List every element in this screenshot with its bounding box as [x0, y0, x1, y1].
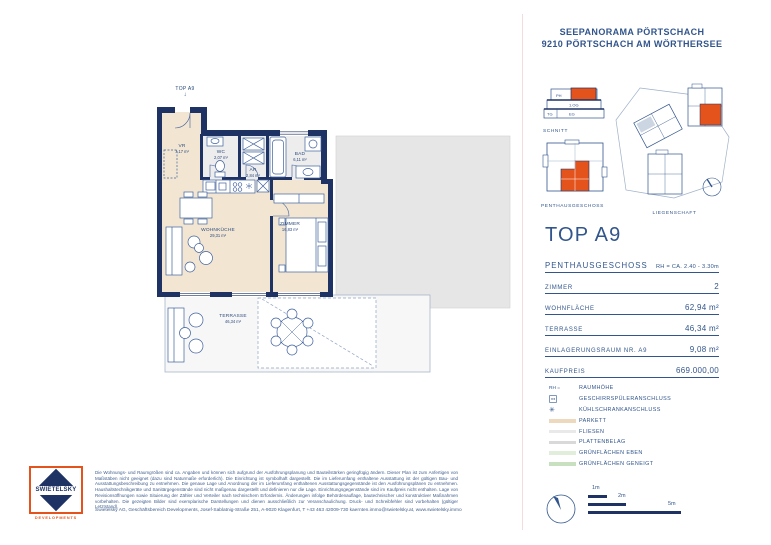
- gruen-eben-swatch: [549, 451, 576, 455]
- row-label: EINLAGERUNGSRAUM NR. A9: [545, 348, 647, 354]
- logo-division: DEVELOPMENTS: [28, 516, 84, 520]
- logo-box: SWIETELSKY: [29, 466, 83, 514]
- scale-bar-5m: [588, 511, 681, 514]
- row-label: ZIMMER: [545, 285, 573, 291]
- scale-5m-label: 5m: [668, 501, 676, 507]
- parkett-swatch: [549, 419, 576, 423]
- fridge-icon: ✳: [549, 406, 579, 414]
- table-row: EINLAGERUNGSRAUM NR. A9 9,08 m²: [545, 336, 719, 357]
- company-line: Swietelsky AG, Geschäftsbereich Developm…: [95, 508, 495, 513]
- room-label: AR2,84 m²: [246, 168, 260, 179]
- legend-item: ✳ KÜHLSCHRANKANSCHLUSS: [549, 405, 724, 416]
- site-north-arrow-icon: [703, 178, 721, 196]
- floorkey-caption: PENTHAUSGESCHOSS: [541, 204, 609, 209]
- section-caption: SCHNITT: [543, 129, 605, 134]
- section-diagram: PH 1.OG TG EG SCHNITT: [543, 86, 605, 134]
- legend-item: PARKETT: [549, 415, 724, 426]
- swietelsky-logo: SWIETELSKY DEVELOPMENTS: [28, 466, 84, 520]
- floor-plan: TOP A9 ↓ VR7,17 m² WC2,07 m² AR2,84 m² B…: [140, 80, 530, 380]
- row-label: KAUFPREIS: [545, 369, 585, 375]
- legend-item: GRÜNFLÄCHEN GENEIGT: [549, 459, 724, 470]
- floorkey-diagram: PENTHAUSGESCHOSS: [541, 139, 609, 209]
- site-building-1: [634, 104, 682, 148]
- site-diagram-svg: [612, 82, 737, 204]
- row-value: RH = CA. 2.40 - 3.30m: [656, 264, 719, 270]
- room-label: TERRASSE46,34 m²: [219, 314, 246, 325]
- project-name: SEEPANORAMA PÖRTSCHACH: [532, 27, 732, 39]
- unit-table: PENTHAUSGESCHOSS RH = CA. 2.40 - 3.30m Z…: [545, 252, 719, 378]
- room-label: ZIMMER16,83 m²: [280, 222, 300, 233]
- roof-area: [336, 136, 510, 308]
- scale-bar-2m: [588, 503, 626, 506]
- disclaimer-text: Die Wohnungs- und Raumgrößen sind ca. An…: [95, 470, 458, 510]
- legend-item: GRÜNFLÄCHEN EBEN: [549, 448, 724, 459]
- row-label: WOHNFLÄCHE: [545, 306, 595, 312]
- legend-item: FLIESEN: [549, 426, 724, 437]
- site-diagram: LIEGENSCHAFT: [612, 82, 737, 216]
- scale-1m-label: 1m: [592, 485, 600, 491]
- dishwasher-icon: [549, 395, 579, 403]
- room-label: BAD6,11 m²: [293, 152, 307, 163]
- row-value: 9,08 m²: [690, 345, 719, 354]
- row-value: 669.000,00: [676, 366, 719, 375]
- scale-2m-label: 2m: [618, 493, 626, 499]
- legend-item: GESCHIRRSPÜLERANSCHLUSS: [549, 394, 724, 405]
- project-header: SEEPANORAMA PÖRTSCHACH 9210 PÖRTSCHACH A…: [532, 27, 732, 50]
- row-value: 62,94 m²: [685, 303, 719, 312]
- project-address: 9210 PÖRTSCHACH AM WÖRTHERSEE: [532, 39, 732, 51]
- level-eg: EG: [569, 112, 575, 117]
- site-caption: LIEGENSCHAFT: [612, 211, 737, 216]
- unit-title: TOP A9: [545, 224, 622, 247]
- level-tg: TG: [547, 112, 553, 117]
- legend-item: RH = RAUMHÖHE: [549, 383, 724, 394]
- table-row: PENTHAUSGESCHOSS RH = CA. 2.40 - 3.30m: [545, 252, 719, 273]
- gruen-geneigt-swatch: [549, 462, 576, 466]
- row-value: 2: [714, 282, 719, 291]
- section-diagram-svg: PH 1.OG TG EG: [543, 86, 605, 122]
- table-row: ZIMMER 2: [545, 273, 719, 294]
- plattenbelag-swatch: [549, 441, 576, 445]
- entrance-label: TOP A9 ↓: [175, 86, 194, 98]
- table-row: TERRASSE 46,34 m²: [545, 315, 719, 336]
- highlighted-unit: [700, 104, 721, 125]
- site-building-3: [648, 150, 682, 194]
- floorplan-page: SEEPANORAMA PÖRTSCHACH 9210 PÖRTSCHACH A…: [0, 0, 771, 545]
- table-row: KAUFPREIS 669.000,00: [545, 357, 719, 378]
- floorkey-diagram-svg: [541, 139, 609, 197]
- north-arrow-icon: [545, 493, 577, 530]
- table-row: WOHNFLÄCHE 62,94 m²: [545, 294, 719, 315]
- room-label: VR7,17 m²: [175, 144, 189, 155]
- row-label: TERRASSE: [545, 327, 583, 333]
- room-label: WOHNKÜCHE29,31 m²: [201, 228, 235, 239]
- legend-item: PLATTENBELAG: [549, 437, 724, 448]
- scale-bar-1m: [588, 495, 607, 498]
- row-label: PENTHAUSGESCHOSS: [545, 261, 648, 270]
- logo-brand: SWIETELSKY: [31, 486, 81, 495]
- row-value: 46,34 m²: [685, 324, 719, 333]
- fliesen-swatch: [549, 430, 576, 434]
- entrance-arrow-icon: ↓: [175, 92, 194, 98]
- level-og1: 1.OG: [569, 103, 579, 108]
- rh-symbol: RH =: [549, 386, 579, 391]
- floor-plan-svg: [140, 80, 530, 380]
- room-label: WC2,07 m²: [214, 150, 228, 161]
- level-ph: PH: [556, 93, 562, 98]
- site-building-2: [688, 84, 722, 126]
- legend: RH = RAUMHÖHE GESCHIRRSPÜLERANSCHLUSS ✳ …: [549, 383, 724, 469]
